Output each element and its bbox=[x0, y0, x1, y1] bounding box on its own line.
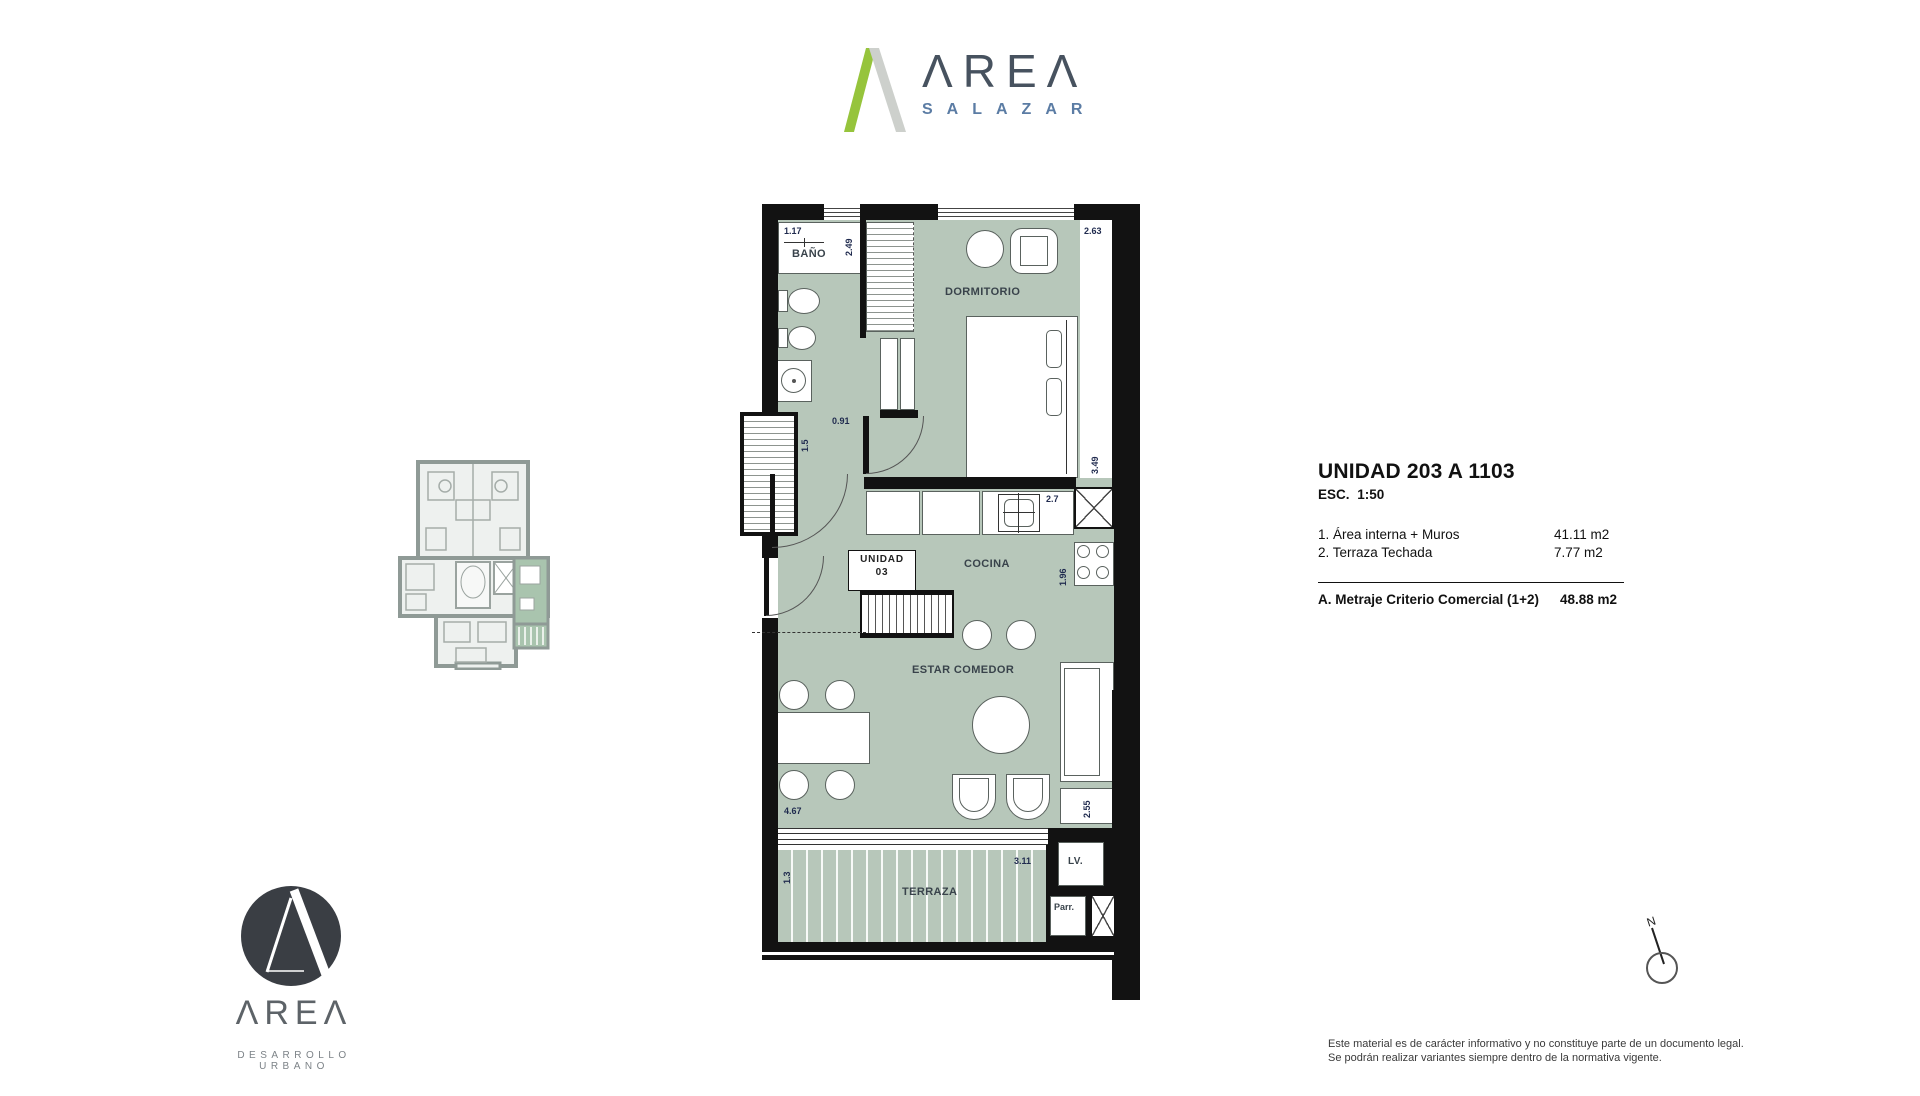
disclaimer-line2: Se podrán realizar variantes siempre den… bbox=[1328, 1052, 1758, 1066]
window bbox=[938, 204, 1074, 220]
brand-wordmark: ΛREΛ SALAZAR bbox=[922, 44, 1096, 119]
room-label-terraza: TERRAZA bbox=[902, 886, 957, 898]
room-label-parrilla: Parr. bbox=[1054, 902, 1074, 912]
area-row: 2. Terraza Techada 7.77 m2 bbox=[1318, 544, 1624, 562]
dim-pasillo: 1.5 bbox=[800, 439, 810, 452]
washbasin-drain bbox=[792, 379, 796, 383]
side-table bbox=[966, 230, 1004, 268]
dining-chair bbox=[825, 680, 855, 710]
bidet-tank bbox=[778, 328, 788, 348]
wall bbox=[1112, 204, 1140, 487]
bidet bbox=[788, 326, 816, 350]
dim-estar-depth: 2.55 bbox=[1082, 800, 1092, 818]
room-label-lavanderia: LV. bbox=[1068, 856, 1083, 867]
projection-dashed-line bbox=[752, 632, 866, 633]
toilet-tank bbox=[778, 290, 788, 312]
footer-brand-word: ΛREΛ bbox=[208, 994, 380, 1033]
key-plan bbox=[398, 458, 550, 670]
page: ΛREΛ SALAZAR bbox=[0, 0, 1920, 1096]
area-row-label: 2. Terraza Techada bbox=[1318, 544, 1554, 562]
unit-title: UNIDAD 203 A 1103 bbox=[1318, 460, 1624, 484]
shaft-x-icon bbox=[1090, 894, 1116, 938]
kitchen-wall bbox=[864, 477, 1076, 489]
area-row-value: 41.11 m2 bbox=[1554, 526, 1624, 544]
unit-tag-line2: 03 bbox=[849, 567, 915, 580]
unit-tag: UNIDAD 03 bbox=[848, 550, 916, 591]
pillow bbox=[1046, 330, 1062, 368]
dining-chair bbox=[779, 680, 809, 710]
bed-headboard-line bbox=[1066, 320, 1067, 474]
bedroom-armchair-seat bbox=[1020, 236, 1048, 266]
coffee-table bbox=[972, 696, 1030, 754]
north-arrow-icon: N bbox=[1638, 912, 1690, 992]
dim-terraza-len: 3.11 bbox=[1014, 856, 1031, 866]
floor-plan: BAÑO DORMITORIO COCINA ESTAR COMEDOR TER… bbox=[752, 190, 1162, 1002]
dim-bano-width: 1.17 bbox=[784, 226, 802, 236]
brand-word: ΛREΛ bbox=[922, 44, 1096, 98]
dining-chair bbox=[779, 770, 809, 800]
closet-door bbox=[880, 338, 898, 410]
dim-dorm-width: 2.63 bbox=[1084, 226, 1102, 236]
faucet-line bbox=[1018, 493, 1019, 533]
dim-cocina-len: 2.7 bbox=[1046, 494, 1059, 504]
closet-door bbox=[900, 338, 915, 410]
dimension-tick bbox=[804, 238, 805, 247]
wall bbox=[762, 204, 778, 412]
armchair-seat bbox=[1013, 778, 1043, 812]
dim-puerta: 0.91 bbox=[832, 416, 850, 426]
room-label-estar: ESTAR COMEDOR bbox=[912, 664, 1014, 676]
toilet bbox=[788, 288, 820, 314]
divider-line bbox=[1318, 582, 1624, 583]
room-label-dormitorio: DORMITORIO bbox=[945, 286, 1020, 298]
wall bbox=[1114, 487, 1140, 690]
unit-info-block: UNIDAD 203 A 1103 ESC. 1:50 1. Área inte… bbox=[1318, 460, 1624, 607]
total-value: 48.88 m2 bbox=[1560, 592, 1624, 607]
kitchen-sink-basin bbox=[1004, 499, 1034, 527]
unit-tag-line1: UNIDAD bbox=[849, 554, 915, 567]
footer-brand-icon bbox=[238, 884, 348, 992]
kitchen-counter bbox=[866, 491, 920, 535]
room-label-cocina: COCINA bbox=[964, 558, 1010, 570]
dining-table bbox=[766, 712, 870, 764]
disclaimer-line1: Este material es de carácter informativo… bbox=[1328, 1038, 1758, 1052]
dim-estar-width: 4.67 bbox=[784, 806, 802, 816]
bath-partition-wall bbox=[860, 220, 866, 338]
wall bbox=[1112, 690, 1140, 1000]
unit-scale: ESC. 1:50 bbox=[1318, 487, 1624, 502]
burner bbox=[1096, 566, 1109, 579]
dim-bano-depth: 2.49 bbox=[844, 238, 854, 256]
brand-subword: SALAZAR bbox=[922, 101, 1096, 119]
dining-chair bbox=[825, 770, 855, 800]
total-row: A. Metraje Criterio Comercial (1+2) 48.8… bbox=[1318, 592, 1624, 607]
terrace-railing bbox=[762, 942, 1114, 960]
armchair-seat bbox=[959, 778, 989, 812]
window bbox=[824, 204, 860, 220]
closet bbox=[866, 222, 914, 332]
faucet-line bbox=[1003, 512, 1035, 513]
kitchen-counter bbox=[922, 491, 980, 535]
shaft-x-icon bbox=[1074, 487, 1114, 529]
north-label: N bbox=[1645, 914, 1658, 930]
total-label: A. Metraje Criterio Comercial (1+2) bbox=[1318, 592, 1560, 607]
footer-brand-tagline: DESARROLLO URBANO bbox=[200, 1050, 388, 1072]
wall bbox=[762, 618, 778, 950]
area-row-value: 7.77 m2 bbox=[1554, 544, 1624, 562]
dim-cocina-depth: 1.96 bbox=[1058, 568, 1068, 586]
sliding-door bbox=[778, 828, 1048, 845]
burner bbox=[1077, 566, 1090, 579]
sofa-seat bbox=[1064, 668, 1100, 776]
wall bbox=[860, 204, 938, 220]
area-row-label: 1. Área interna + Muros bbox=[1318, 526, 1554, 544]
kitchen-island bbox=[860, 590, 954, 638]
dim-dorm-depth: 3.49 bbox=[1090, 456, 1100, 474]
stool bbox=[962, 620, 992, 650]
area-row: 1. Área interna + Muros 41.11 m2 bbox=[1318, 526, 1624, 544]
room-label-bano: BAÑO bbox=[792, 248, 826, 260]
brand-mark-icon bbox=[838, 40, 918, 134]
dim-terraza-depth: 1.3 bbox=[782, 871, 792, 884]
burner bbox=[1096, 545, 1109, 558]
disclaimer: Este material es de carácter informativo… bbox=[1328, 1038, 1758, 1066]
burner bbox=[1077, 545, 1090, 558]
right-ledge-strip bbox=[1080, 220, 1114, 478]
stool bbox=[1006, 620, 1036, 650]
pillow bbox=[1046, 378, 1062, 416]
